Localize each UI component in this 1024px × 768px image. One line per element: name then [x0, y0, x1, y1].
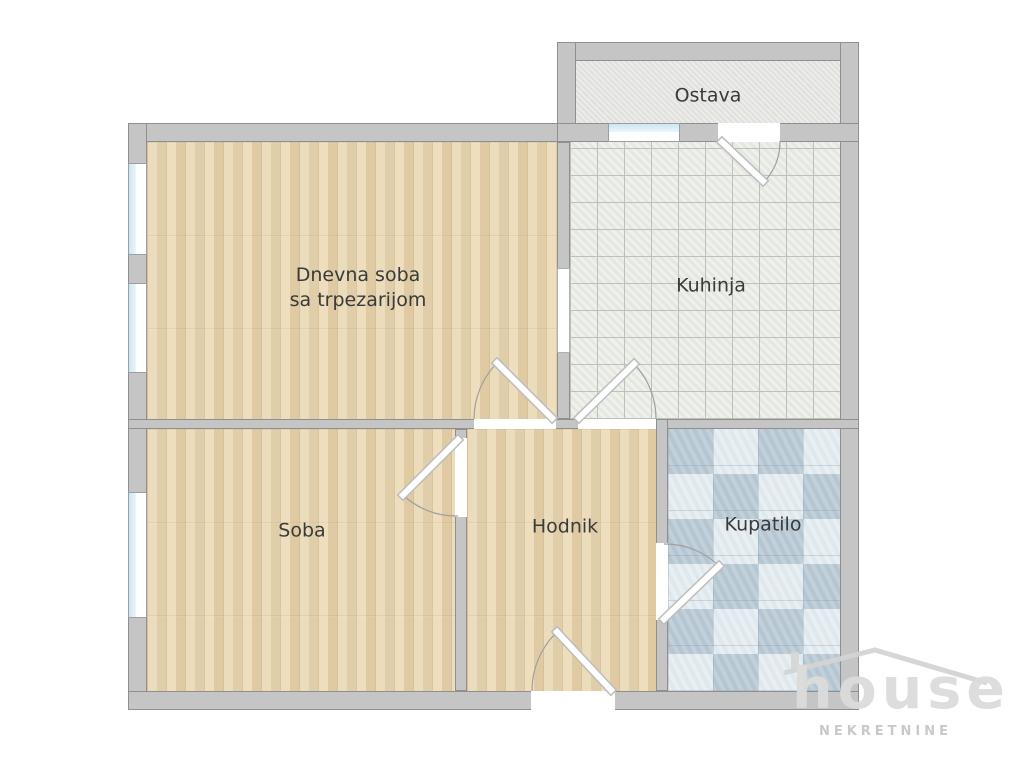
door-swing-bathroom: [664, 544, 719, 619]
room-label-bathroom: Kupatilo: [725, 513, 802, 538]
logo-subtitle-text: NEKRETNINE: [778, 724, 993, 739]
room-label-living-line1: Dnevna soba: [290, 263, 427, 288]
room-label-kitchen: Kuhinja: [676, 274, 746, 299]
door-swing-pantry: [722, 141, 780, 182]
room-label-living-line2: sa trpezarijom: [290, 288, 427, 313]
door-swing-bedroom: [403, 440, 458, 516]
door-swing-kitchen: [579, 364, 656, 419]
floor-plan: Ostava Kuhinja Dnevna soba sa trpezarijo…: [0, 0, 1024, 768]
door-swing-entry: [532, 632, 611, 691]
door-swing-living: [474, 363, 552, 419]
agency-logo: house NEKRETNINE: [778, 644, 1018, 754]
room-label-bedroom: Soba: [278, 519, 325, 544]
room-label-pantry: Ostava: [675, 84, 742, 109]
room-label-living: Dnevna soba sa trpezarijom: [290, 263, 427, 313]
logo-brand-text: house: [792, 656, 1010, 722]
room-label-hallway: Hodnik: [532, 515, 598, 540]
